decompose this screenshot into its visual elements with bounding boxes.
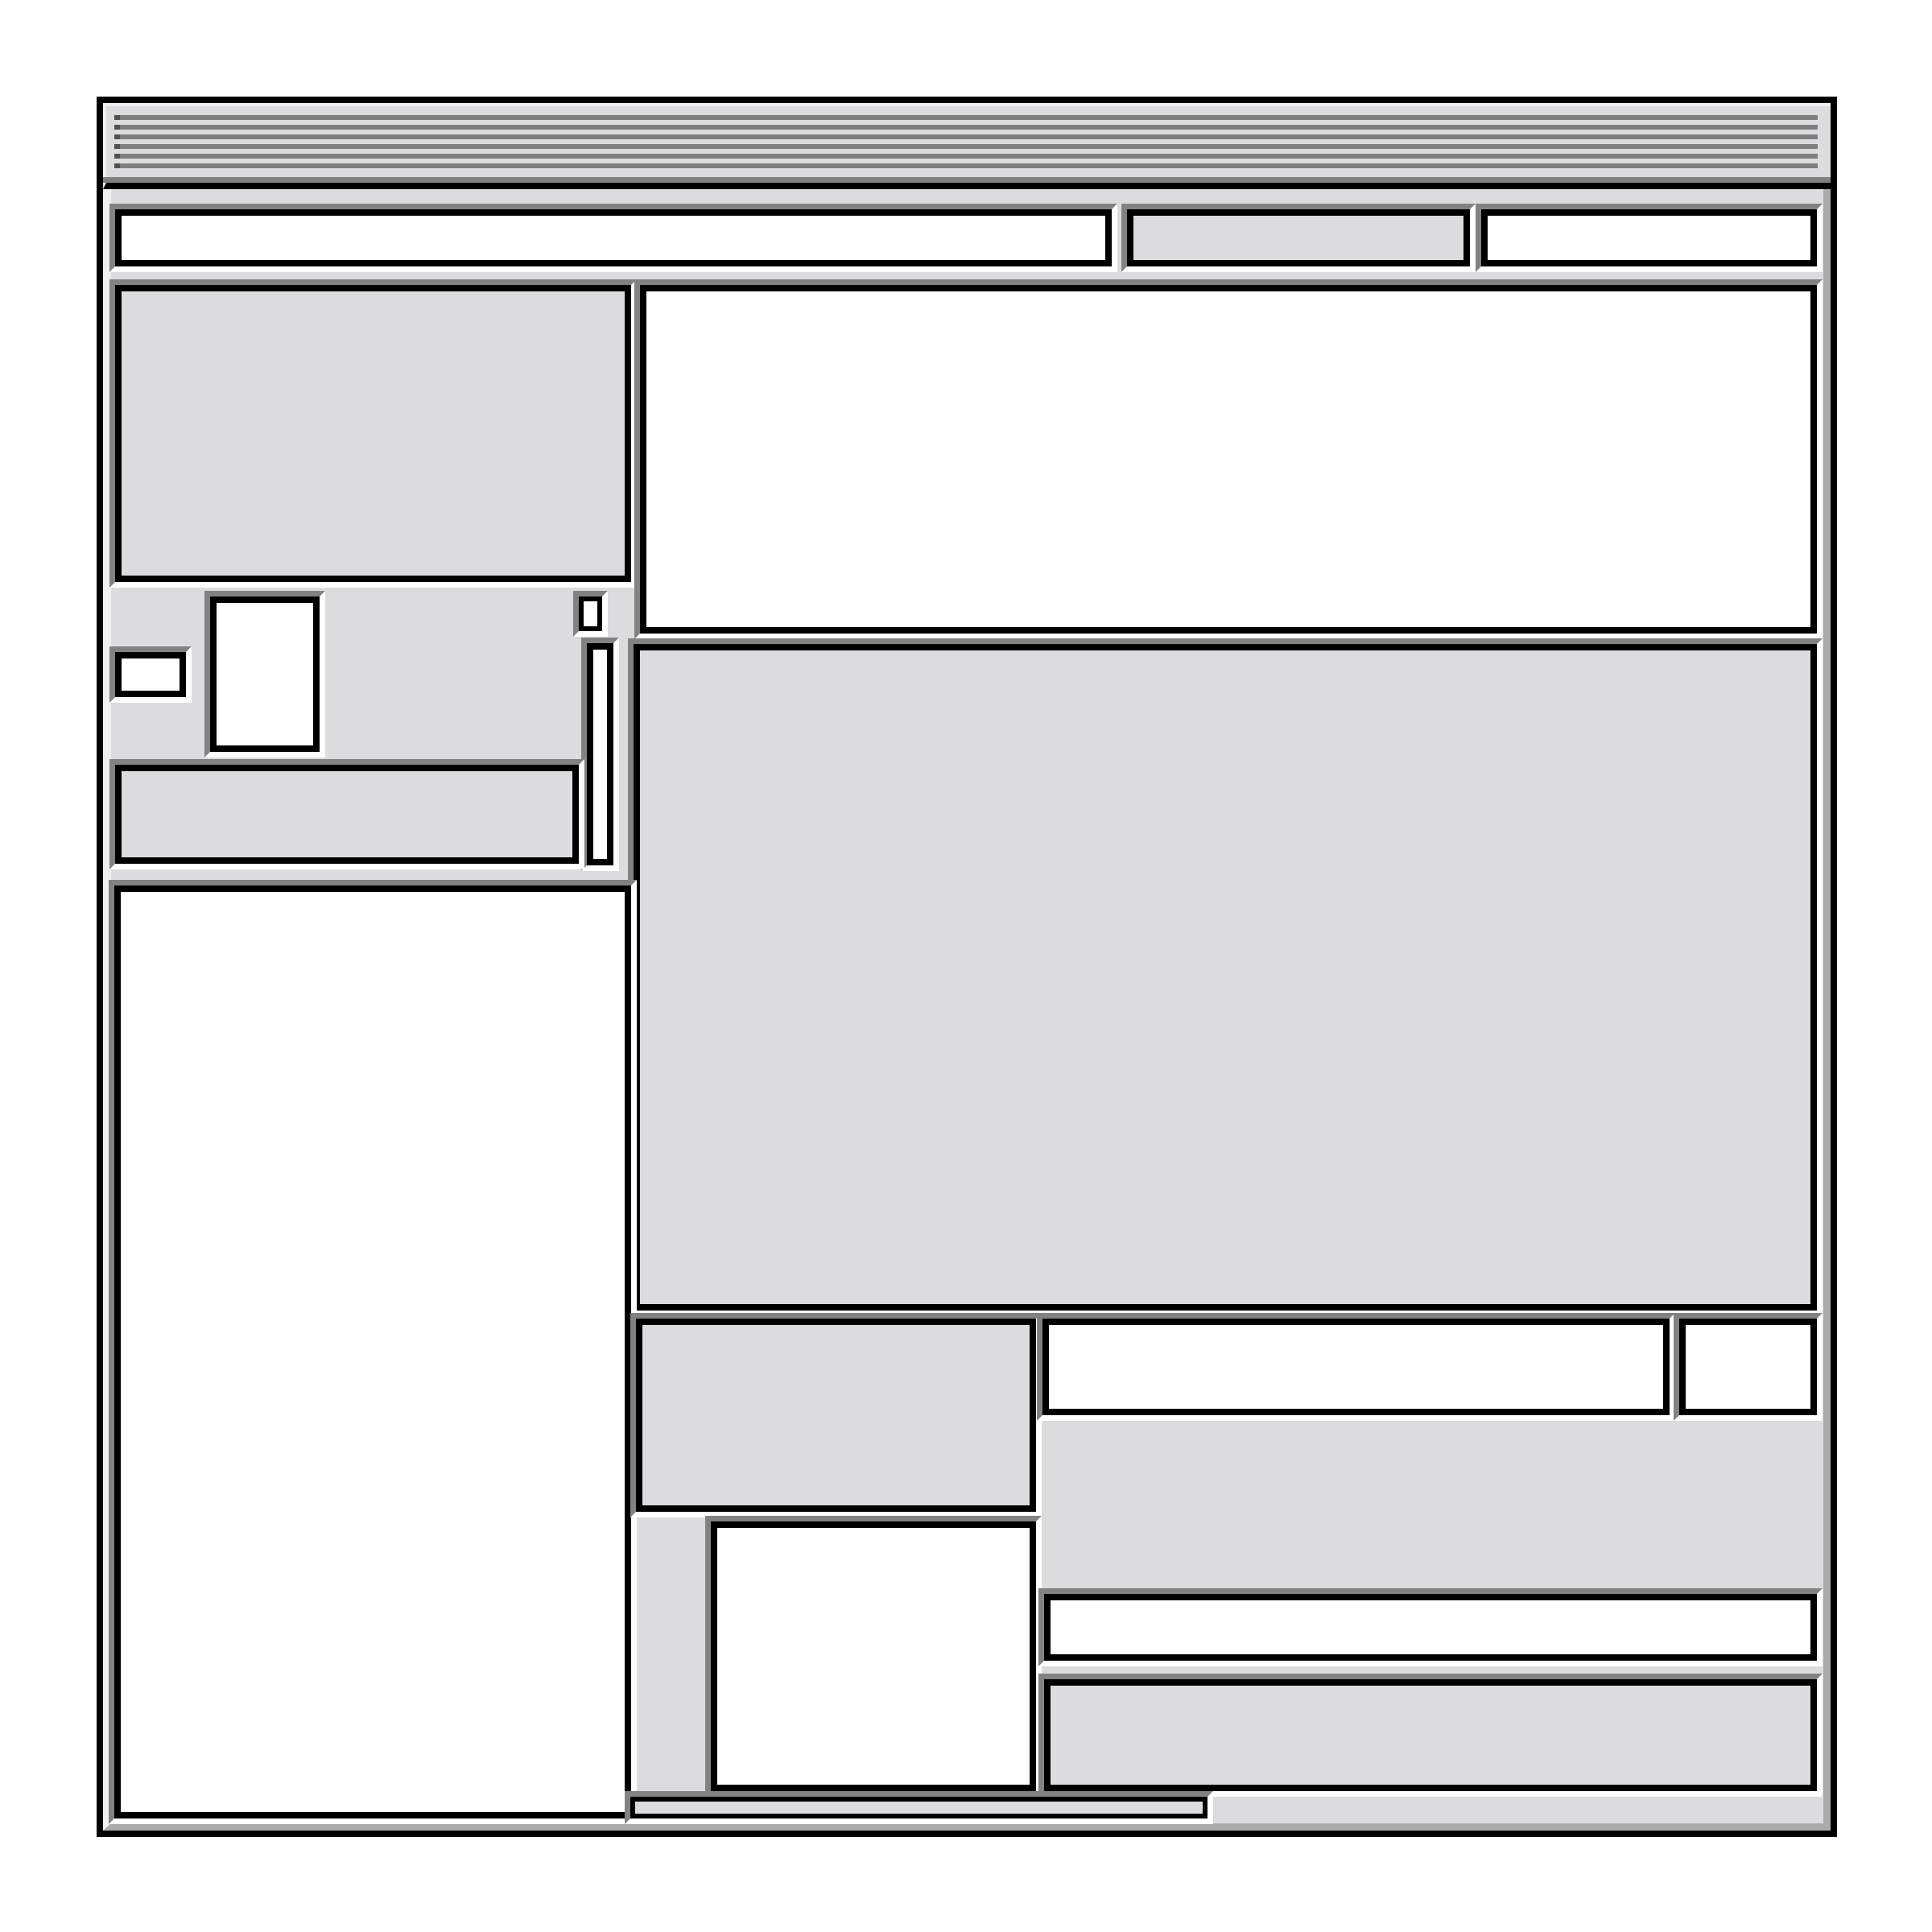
titlebar-stripe [114, 134, 1818, 139]
preview-box-surface [210, 597, 320, 752]
toolbar-box-center[interactable] [1121, 204, 1476, 272]
toolbar-field-right-surface[interactable] [1481, 209, 1817, 266]
toolbar-field-long[interactable] [109, 204, 1117, 272]
bottom-gray-box-surface [1044, 1679, 1817, 1791]
lower-field-small-surface[interactable] [1679, 1319, 1817, 1415]
titlebar-shadow-edge [103, 177, 1831, 183]
toolbar-field-right[interactable] [1476, 204, 1823, 272]
titlebar-stripe [114, 115, 1818, 120]
titlebar-stripes [114, 115, 1818, 168]
lower-field-wide[interactable] [1037, 1313, 1675, 1421]
titlebar-stripe [114, 144, 1818, 149]
titlebar-stripe [114, 154, 1818, 159]
scrollbar-track-surface[interactable] [587, 643, 613, 865]
inset-white-box-surface [711, 1521, 1036, 1791]
toolbar-field-long-surface[interactable] [115, 209, 1112, 266]
panel-upper-right [634, 279, 1823, 639]
bar-panel-surface [115, 765, 579, 864]
titlebar-stripe [114, 163, 1818, 168]
lower-gray-box [630, 1313, 1042, 1517]
bottom-gray-box [1038, 1674, 1823, 1797]
desktop-background [0, 0, 1932, 1932]
inset-white-box [705, 1516, 1042, 1797]
sidebar-panel-surface [114, 885, 631, 1818]
toolbar-box-center-surface[interactable] [1127, 209, 1470, 266]
small-field[interactable] [109, 646, 192, 703]
lower-gray-box-surface [636, 1319, 1036, 1512]
mini-button-box-surface[interactable] [579, 597, 602, 631]
bottom-field-long[interactable] [1038, 1588, 1823, 1666]
panel-upper-left-surface [115, 285, 631, 582]
panel-upper-left [109, 279, 637, 588]
mini-button-box[interactable] [573, 591, 608, 637]
small-field-surface[interactable] [115, 652, 186, 697]
main-canvas-panel [628, 638, 1823, 1316]
lower-field-wide-surface[interactable] [1042, 1319, 1670, 1415]
titlebar-stripe [114, 125, 1818, 130]
lower-field-small[interactable] [1674, 1313, 1823, 1421]
panel-upper-right-surface [640, 285, 1817, 634]
window [97, 97, 1837, 1837]
titlebar[interactable] [103, 103, 1831, 189]
bottom-slider-bar-surface[interactable] [630, 1797, 1207, 1818]
bottom-slider-bar[interactable] [625, 1791, 1213, 1824]
bar-panel [109, 759, 584, 869]
scrollbar-track[interactable] [581, 638, 619, 871]
main-canvas-panel-surface [634, 644, 1817, 1311]
bottom-field-long-surface[interactable] [1044, 1594, 1817, 1661]
preview-box [204, 591, 325, 758]
sidebar-panel [109, 880, 637, 1824]
